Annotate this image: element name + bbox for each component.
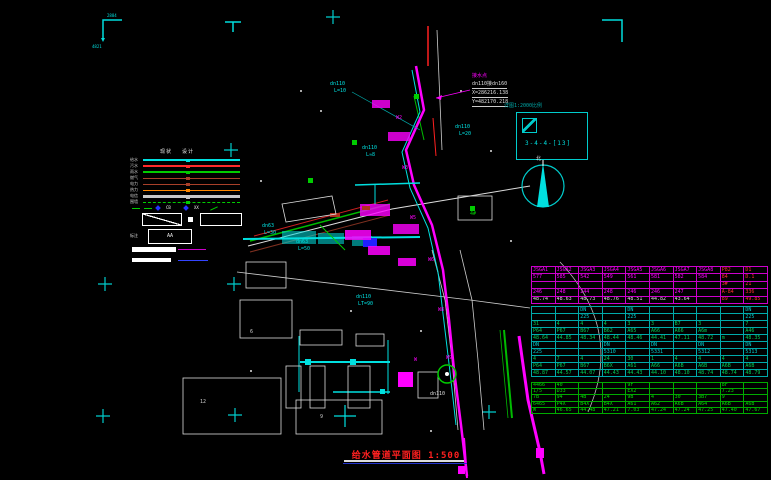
frame-corner-marks bbox=[103, 20, 622, 42]
table-row: 48.7448.6348.7348.7648.5144.8243.648949.… bbox=[532, 296, 768, 303]
detail-reference-label: 3-4-4-[13] bbox=[525, 140, 571, 147]
table-cell: 582 bbox=[673, 274, 697, 281]
table-cell: JSGA4 bbox=[602, 267, 626, 274]
table-cell: 48.46 bbox=[626, 335, 650, 342]
legend-line-sample bbox=[143, 202, 240, 203]
table-cell bbox=[673, 314, 697, 321]
table-row: P64P67B67B62A65A66A66A6mA46 bbox=[532, 328, 768, 335]
table-cell: A6B bbox=[673, 363, 697, 370]
table-cell: 4 bbox=[579, 356, 603, 363]
outline-box-symbol bbox=[200, 213, 242, 226]
north-arrow bbox=[522, 160, 564, 207]
table-cell: 225 bbox=[579, 314, 603, 321]
square-symbol bbox=[188, 217, 193, 222]
legend-line-sample bbox=[143, 195, 240, 198]
table-cell: 4 bbox=[602, 321, 626, 328]
table-cell: JSGA5 bbox=[626, 267, 650, 274]
table-cell: 47.67 bbox=[744, 407, 768, 413]
table-cell: P64 bbox=[532, 363, 556, 370]
table-cell: 48.63 bbox=[555, 296, 579, 303]
table-cell bbox=[720, 307, 744, 314]
table-cell: A6B bbox=[744, 363, 768, 370]
table-cell: A66 bbox=[649, 363, 673, 370]
north-label: 北 bbox=[536, 155, 541, 162]
main-water-pipe bbox=[352, 66, 467, 476]
table-cell: 246 bbox=[626, 289, 650, 296]
pipe-hatch-patches bbox=[282, 100, 419, 394]
table-cell bbox=[626, 349, 650, 356]
table-cell: 244 bbox=[579, 289, 603, 296]
table-cell bbox=[697, 307, 721, 314]
table-cell: 246 bbox=[649, 289, 673, 296]
blue-line-sample bbox=[178, 260, 208, 261]
table-cell: 48.35 bbox=[744, 335, 768, 342]
table-cell: m bbox=[720, 335, 744, 342]
table-row: P64P67B67B6XA61A66A6BA6BA6BA6B bbox=[532, 363, 768, 370]
table-cell: 4 bbox=[697, 356, 721, 363]
legend-boxes-row bbox=[142, 212, 242, 226]
table-cell: A46 bbox=[744, 328, 768, 335]
table-cell: 584 bbox=[697, 274, 721, 281]
table-cell: DN bbox=[532, 342, 556, 349]
table-cell: 48.44 bbox=[602, 335, 626, 342]
table-cell bbox=[720, 321, 744, 328]
table-cell bbox=[602, 314, 626, 321]
table-row: 225225225 bbox=[532, 314, 768, 321]
table-cell: 4 bbox=[555, 321, 579, 328]
table-row: 2255310533153125313 bbox=[532, 349, 768, 356]
table-row: 3144433B737 bbox=[532, 321, 768, 328]
legend-marks-row: CB XX bbox=[132, 205, 240, 211]
table-cell: 47.11 bbox=[673, 335, 697, 342]
table-cell: 84 bbox=[720, 274, 744, 281]
magenta-line-sample bbox=[178, 249, 206, 250]
table-cell: B67 bbox=[579, 363, 603, 370]
table-row: 48.6444.8548.3448.4448.4644.4147.1148.72… bbox=[532, 335, 768, 342]
table-cell: 48.74 bbox=[697, 370, 721, 377]
table-cell: A66 bbox=[673, 328, 697, 335]
valve-symbols bbox=[308, 94, 475, 217]
table-cell: 5310 bbox=[602, 349, 626, 356]
table-cell: 248 bbox=[602, 289, 626, 296]
legend-col-header-design: 设计 bbox=[182, 148, 194, 155]
table-cell bbox=[555, 281, 579, 288]
table-cell: 44.41 bbox=[649, 335, 673, 342]
table-row: DNDNDN bbox=[532, 307, 768, 314]
hatch-symbol bbox=[522, 118, 537, 133]
table-cell: 44.85 bbox=[555, 335, 579, 342]
table-cell: 3 bbox=[649, 321, 673, 328]
table-cell: 248 bbox=[555, 289, 579, 296]
scale-bar-1 bbox=[132, 247, 176, 252]
table-cell: JSGA3 bbox=[579, 267, 603, 274]
table-cell: 48.74 bbox=[532, 296, 556, 303]
table-cell: P82 bbox=[720, 267, 744, 274]
table-cell: 247 bbox=[673, 289, 697, 296]
table-cell bbox=[673, 349, 697, 356]
table-cell: 585 bbox=[555, 274, 579, 281]
table-cell: 577 bbox=[532, 274, 556, 281]
legend-line-marker bbox=[186, 159, 190, 162]
slope-symbol-box bbox=[142, 213, 182, 226]
legend-line-marker bbox=[186, 189, 190, 192]
table-cell bbox=[532, 307, 556, 314]
table-cell: A65 bbox=[626, 328, 650, 335]
table-cell: 47.24 bbox=[649, 407, 673, 413]
table-cell: 30 bbox=[626, 356, 650, 363]
pipe-data-table-middle: DNDNDN2252252253144433B737P64P67B67B62A6… bbox=[531, 306, 768, 377]
table-cell: 48.10 bbox=[673, 370, 697, 377]
table-cell: 47.40 bbox=[720, 407, 744, 413]
table-cell: 7 bbox=[555, 356, 579, 363]
table-cell: DN bbox=[626, 307, 650, 314]
table-cell: 561 bbox=[626, 274, 650, 281]
table-cell: 225 bbox=[744, 314, 768, 321]
table-cell: 3 bbox=[697, 321, 721, 328]
table-cell: 24 bbox=[602, 356, 626, 363]
legend-line-marker bbox=[186, 171, 190, 174]
table-cell: A61 bbox=[626, 363, 650, 370]
table-cell bbox=[626, 281, 650, 288]
table-cell: JSGA2 bbox=[555, 267, 579, 274]
table-cell: 4 bbox=[744, 356, 768, 363]
table-cell: 48.79 bbox=[744, 370, 768, 377]
table-cell: DN bbox=[649, 342, 673, 349]
connection-note-x: X=286216.138 bbox=[472, 89, 508, 98]
table-cell: 47.21 bbox=[602, 407, 626, 413]
table-cell bbox=[649, 314, 673, 321]
legend-line-sample bbox=[143, 178, 240, 179]
table-cell: 31 bbox=[532, 321, 556, 328]
table-row: W46.6544.4847.217.0347.2447.2447.2547.40… bbox=[532, 407, 768, 413]
table-cell: 44.82 bbox=[649, 296, 673, 303]
table-cell: B7 bbox=[673, 321, 697, 328]
table-cell: A6B bbox=[697, 363, 721, 370]
frame-coordinate-text: 2884 bbox=[107, 13, 117, 18]
table-cell bbox=[673, 342, 697, 349]
table-cell: 47.25 bbox=[697, 407, 721, 413]
table-cell: 4 bbox=[673, 356, 697, 363]
detail-reference-box: 3-4-4-[13] bbox=[516, 112, 588, 160]
table-cell: 549 bbox=[602, 274, 626, 281]
table-cell: 48.76 bbox=[602, 296, 626, 303]
table-cell: 7 bbox=[744, 321, 768, 328]
table-cell: W bbox=[532, 407, 556, 413]
table-cell bbox=[579, 349, 603, 356]
table-cell: 44.57 bbox=[555, 370, 579, 377]
table-cell bbox=[697, 314, 721, 321]
table-cell bbox=[649, 281, 673, 288]
table-cell bbox=[579, 281, 603, 288]
frame-arrow bbox=[101, 38, 105, 42]
table-row: 246248244248246246247A-84336 bbox=[532, 289, 768, 296]
legend-line-sample bbox=[143, 159, 240, 161]
legend-annotation-row: 标注 AA bbox=[130, 229, 230, 243]
table-row: JSGA1JSGA2JSGA3JSGA4JSGA5JSGA6JSGA7JSGA8… bbox=[532, 267, 768, 274]
table-cell bbox=[673, 281, 697, 288]
table-cell: 46.65 bbox=[555, 407, 579, 413]
table-cell: 225 bbox=[532, 349, 556, 356]
legend-line-marker bbox=[186, 183, 190, 186]
diamond-symbol bbox=[183, 205, 189, 211]
table-cell bbox=[579, 342, 603, 349]
table-cell: 1 bbox=[649, 356, 673, 363]
table-cell: P67 bbox=[555, 328, 579, 335]
table-cell: DN bbox=[744, 307, 768, 314]
table-cell: A-84 bbox=[720, 289, 744, 296]
annotation-box: AA bbox=[148, 229, 192, 244]
table-cell bbox=[697, 289, 721, 296]
pipe-data-table-top: JSGA1JSGA2JSGA3JSGA4JSGA5JSGA6JSGA7JSGA8… bbox=[531, 266, 768, 304]
legend-lines: 给水污水雨水燃气电力热力电信围墙 bbox=[130, 157, 240, 205]
title-underline bbox=[344, 460, 464, 462]
connection-note-y: Y=482170.218 bbox=[472, 98, 508, 107]
table-cell: B67 bbox=[579, 328, 603, 335]
table-cell: A6B bbox=[720, 363, 744, 370]
legend-line-sample bbox=[143, 165, 240, 167]
table-cell: 43.64 bbox=[673, 296, 697, 303]
table-cell: 49.85 bbox=[744, 296, 768, 303]
table-cell: 48.64 bbox=[532, 335, 556, 342]
table-cell: D1 bbox=[744, 267, 768, 274]
table-cell: 44.07 bbox=[579, 370, 603, 377]
legend-line-marker bbox=[186, 201, 190, 204]
table-cell: P64 bbox=[532, 328, 556, 335]
table-cell: 44.10 bbox=[649, 370, 673, 377]
table-cell bbox=[602, 307, 626, 314]
table-cell: 44.48 bbox=[579, 407, 603, 413]
title-underline-blue bbox=[343, 463, 467, 464]
table-cell bbox=[720, 328, 744, 335]
table-cell: D.1 bbox=[744, 274, 768, 281]
table-cell bbox=[720, 349, 744, 356]
table-cell: 48.72 bbox=[697, 335, 721, 342]
table-cell bbox=[649, 307, 673, 314]
table-cell: 225 bbox=[626, 314, 650, 321]
table-cell: 48.74 bbox=[720, 370, 744, 377]
legend-line-sample bbox=[143, 171, 240, 173]
table-cell: B62 bbox=[602, 328, 626, 335]
table-cell: A66 bbox=[649, 328, 673, 335]
table-cell: 48.73 bbox=[579, 296, 603, 303]
connection-note-title: 接水点 bbox=[472, 72, 542, 80]
detail-box-caption: 详图1:2000比例 bbox=[504, 102, 542, 109]
scale-bar-2 bbox=[132, 258, 171, 262]
table-cell: 4 bbox=[579, 321, 603, 328]
diamond-symbol bbox=[155, 205, 161, 211]
table-cell: 4 bbox=[720, 356, 744, 363]
table-cell: JSGA8 bbox=[697, 267, 721, 274]
table-cell: DN bbox=[697, 342, 721, 349]
table-cell bbox=[720, 314, 744, 321]
table-row: 3#21 bbox=[532, 281, 768, 288]
table-cell: 7.03 bbox=[626, 407, 650, 413]
table-cell: 5312 bbox=[697, 349, 721, 356]
table-cell: 44.43 bbox=[602, 370, 626, 377]
table-cell: 48.51 bbox=[626, 296, 650, 303]
legend-line-marker bbox=[186, 177, 190, 180]
table-cell: B6X bbox=[602, 363, 626, 370]
pipe-data-table-bottom: 4466409F8F1/5D33EX27.237B944B249B4303B79… bbox=[531, 382, 768, 414]
table-cell bbox=[555, 342, 579, 349]
table-cell: 336 bbox=[744, 289, 768, 296]
table-cell bbox=[720, 342, 744, 349]
table-cell: 3 bbox=[626, 321, 650, 328]
table-cell: A6m bbox=[697, 328, 721, 335]
table-cell: 542 bbox=[579, 274, 603, 281]
table-cell bbox=[532, 314, 556, 321]
table-cell bbox=[697, 281, 721, 288]
table-cell: 5331 bbox=[649, 349, 673, 356]
table-cell bbox=[602, 281, 626, 288]
table-row: 474243014444 bbox=[532, 356, 768, 363]
table-cell: 581 bbox=[649, 274, 673, 281]
magenta-structure bbox=[398, 372, 413, 387]
table-cell: 4 bbox=[532, 356, 556, 363]
table-cell: 246 bbox=[532, 289, 556, 296]
table-cell bbox=[626, 342, 650, 349]
table-cell bbox=[673, 307, 697, 314]
annotation-label: 标注 bbox=[130, 233, 138, 239]
table-cell: 48.87 bbox=[532, 370, 556, 377]
table-cell: JSGA1 bbox=[532, 267, 556, 274]
legend-line-sample bbox=[143, 184, 240, 185]
table-cell: 89 bbox=[720, 296, 744, 303]
legend-mark-text-2: XX bbox=[194, 205, 199, 210]
table-cell: DN bbox=[579, 307, 603, 314]
table-cell: P67 bbox=[555, 363, 579, 370]
legend-line-marker bbox=[186, 196, 190, 199]
table-cell: JSGA6 bbox=[649, 267, 673, 274]
table-row: 57758554254956158158258484D.1 bbox=[532, 274, 768, 281]
connection-note-size: dn110接dn160 bbox=[472, 80, 507, 89]
frame-coordinate-text-2: 4821 bbox=[92, 44, 102, 49]
cad-drawing-canvas: 2884 4821 现状 设计 给水污水雨水燃气电力热力电信围墙 CB XX 标… bbox=[0, 0, 771, 480]
table-cell bbox=[532, 281, 556, 288]
legend-mark-text-1: CB bbox=[166, 205, 171, 210]
legend-line-sample bbox=[143, 190, 240, 191]
table-row: DNDNDNDNDN bbox=[532, 342, 768, 349]
table-cell: 47.24 bbox=[673, 407, 697, 413]
table-cell: 48.34 bbox=[579, 335, 603, 342]
table-cell: DN bbox=[602, 342, 626, 349]
table-cell: JSGA7 bbox=[673, 267, 697, 274]
table-cell: 21 bbox=[744, 281, 768, 288]
legend-col-header-existing: 现状 bbox=[160, 148, 172, 155]
table-cell: 5313 bbox=[744, 349, 768, 356]
table-cell: 44.43 bbox=[626, 370, 650, 377]
table-cell bbox=[555, 307, 579, 314]
table-cell bbox=[555, 349, 579, 356]
table-cell bbox=[555, 314, 579, 321]
table-cell: 3# bbox=[720, 281, 744, 288]
table-cell bbox=[697, 296, 721, 303]
legend-line-marker bbox=[186, 165, 190, 168]
table-cell: DN bbox=[744, 342, 768, 349]
table-row: 48.8744.5744.0744.4344.4344.1048.1048.74… bbox=[532, 370, 768, 377]
